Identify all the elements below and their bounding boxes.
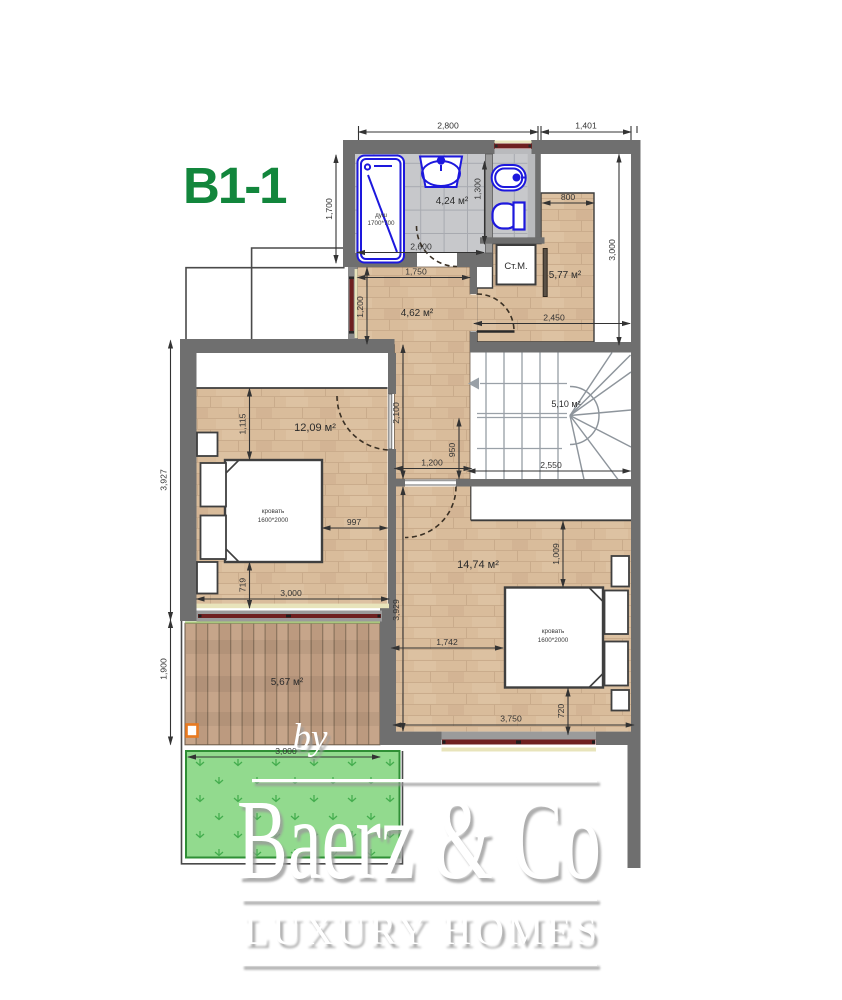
- svg-text:800: 800: [561, 192, 576, 202]
- svg-text:5,10 м²: 5,10 м²: [551, 399, 580, 409]
- svg-text:1600*2000: 1600*2000: [538, 637, 569, 644]
- svg-text:1,401: 1,401: [575, 121, 597, 131]
- svg-text:1700*700: 1700*700: [368, 220, 395, 227]
- svg-text:2,450: 2,450: [543, 313, 565, 323]
- svg-text:by: by: [293, 717, 329, 758]
- svg-text:950: 950: [447, 443, 457, 458]
- svg-text:1,200: 1,200: [421, 458, 443, 468]
- svg-text:Ст.М.: Ст.М.: [504, 261, 527, 272]
- svg-text:5,77 м²: 5,77 м²: [549, 270, 582, 281]
- svg-text:2,550: 2,550: [540, 460, 562, 470]
- svg-text:1,750: 1,750: [405, 267, 427, 277]
- svg-text:2,100: 2,100: [391, 402, 401, 424]
- svg-text:3,000: 3,000: [607, 239, 617, 261]
- svg-text:1,115: 1,115: [238, 413, 248, 434]
- svg-text:3,927: 3,927: [159, 469, 169, 491]
- svg-text:1,300: 1,300: [473, 178, 483, 200]
- svg-text:1,700: 1,700: [324, 198, 334, 220]
- svg-text:1600*2000: 1600*2000: [258, 517, 289, 524]
- svg-text:1,200: 1,200: [355, 296, 365, 318]
- svg-text:4,62 м²: 4,62 м²: [401, 308, 434, 319]
- svg-text:кровать: кровать: [262, 508, 285, 515]
- svg-text:душ: душ: [375, 212, 387, 219]
- svg-text:14,74 м²: 14,74 м²: [457, 559, 499, 571]
- svg-text:2,600: 2,600: [410, 242, 432, 252]
- svg-text:1,900: 1,900: [159, 658, 169, 680]
- svg-text:3,750: 3,750: [500, 714, 522, 724]
- svg-text:720: 720: [556, 704, 566, 719]
- svg-text:Baerz & Co: Baerz & Co: [237, 776, 601, 903]
- svg-text:кровать: кровать: [542, 628, 565, 635]
- svg-text:719: 719: [238, 578, 248, 593]
- svg-text:12,09 м²: 12,09 м²: [294, 422, 336, 434]
- svg-text:1,009: 1,009: [551, 543, 561, 565]
- svg-text:3,929: 3,929: [391, 599, 401, 621]
- svg-text:2,800: 2,800: [437, 121, 459, 131]
- svg-text:997: 997: [347, 517, 362, 527]
- svg-text:3,000: 3,000: [280, 588, 302, 598]
- svg-text:1,742: 1,742: [436, 637, 458, 647]
- svg-text:5,67 м²: 5,67 м²: [271, 677, 304, 688]
- svg-text:4,24 м²: 4,24 м²: [436, 196, 469, 207]
- svg-text:B1-1: B1-1: [183, 157, 286, 214]
